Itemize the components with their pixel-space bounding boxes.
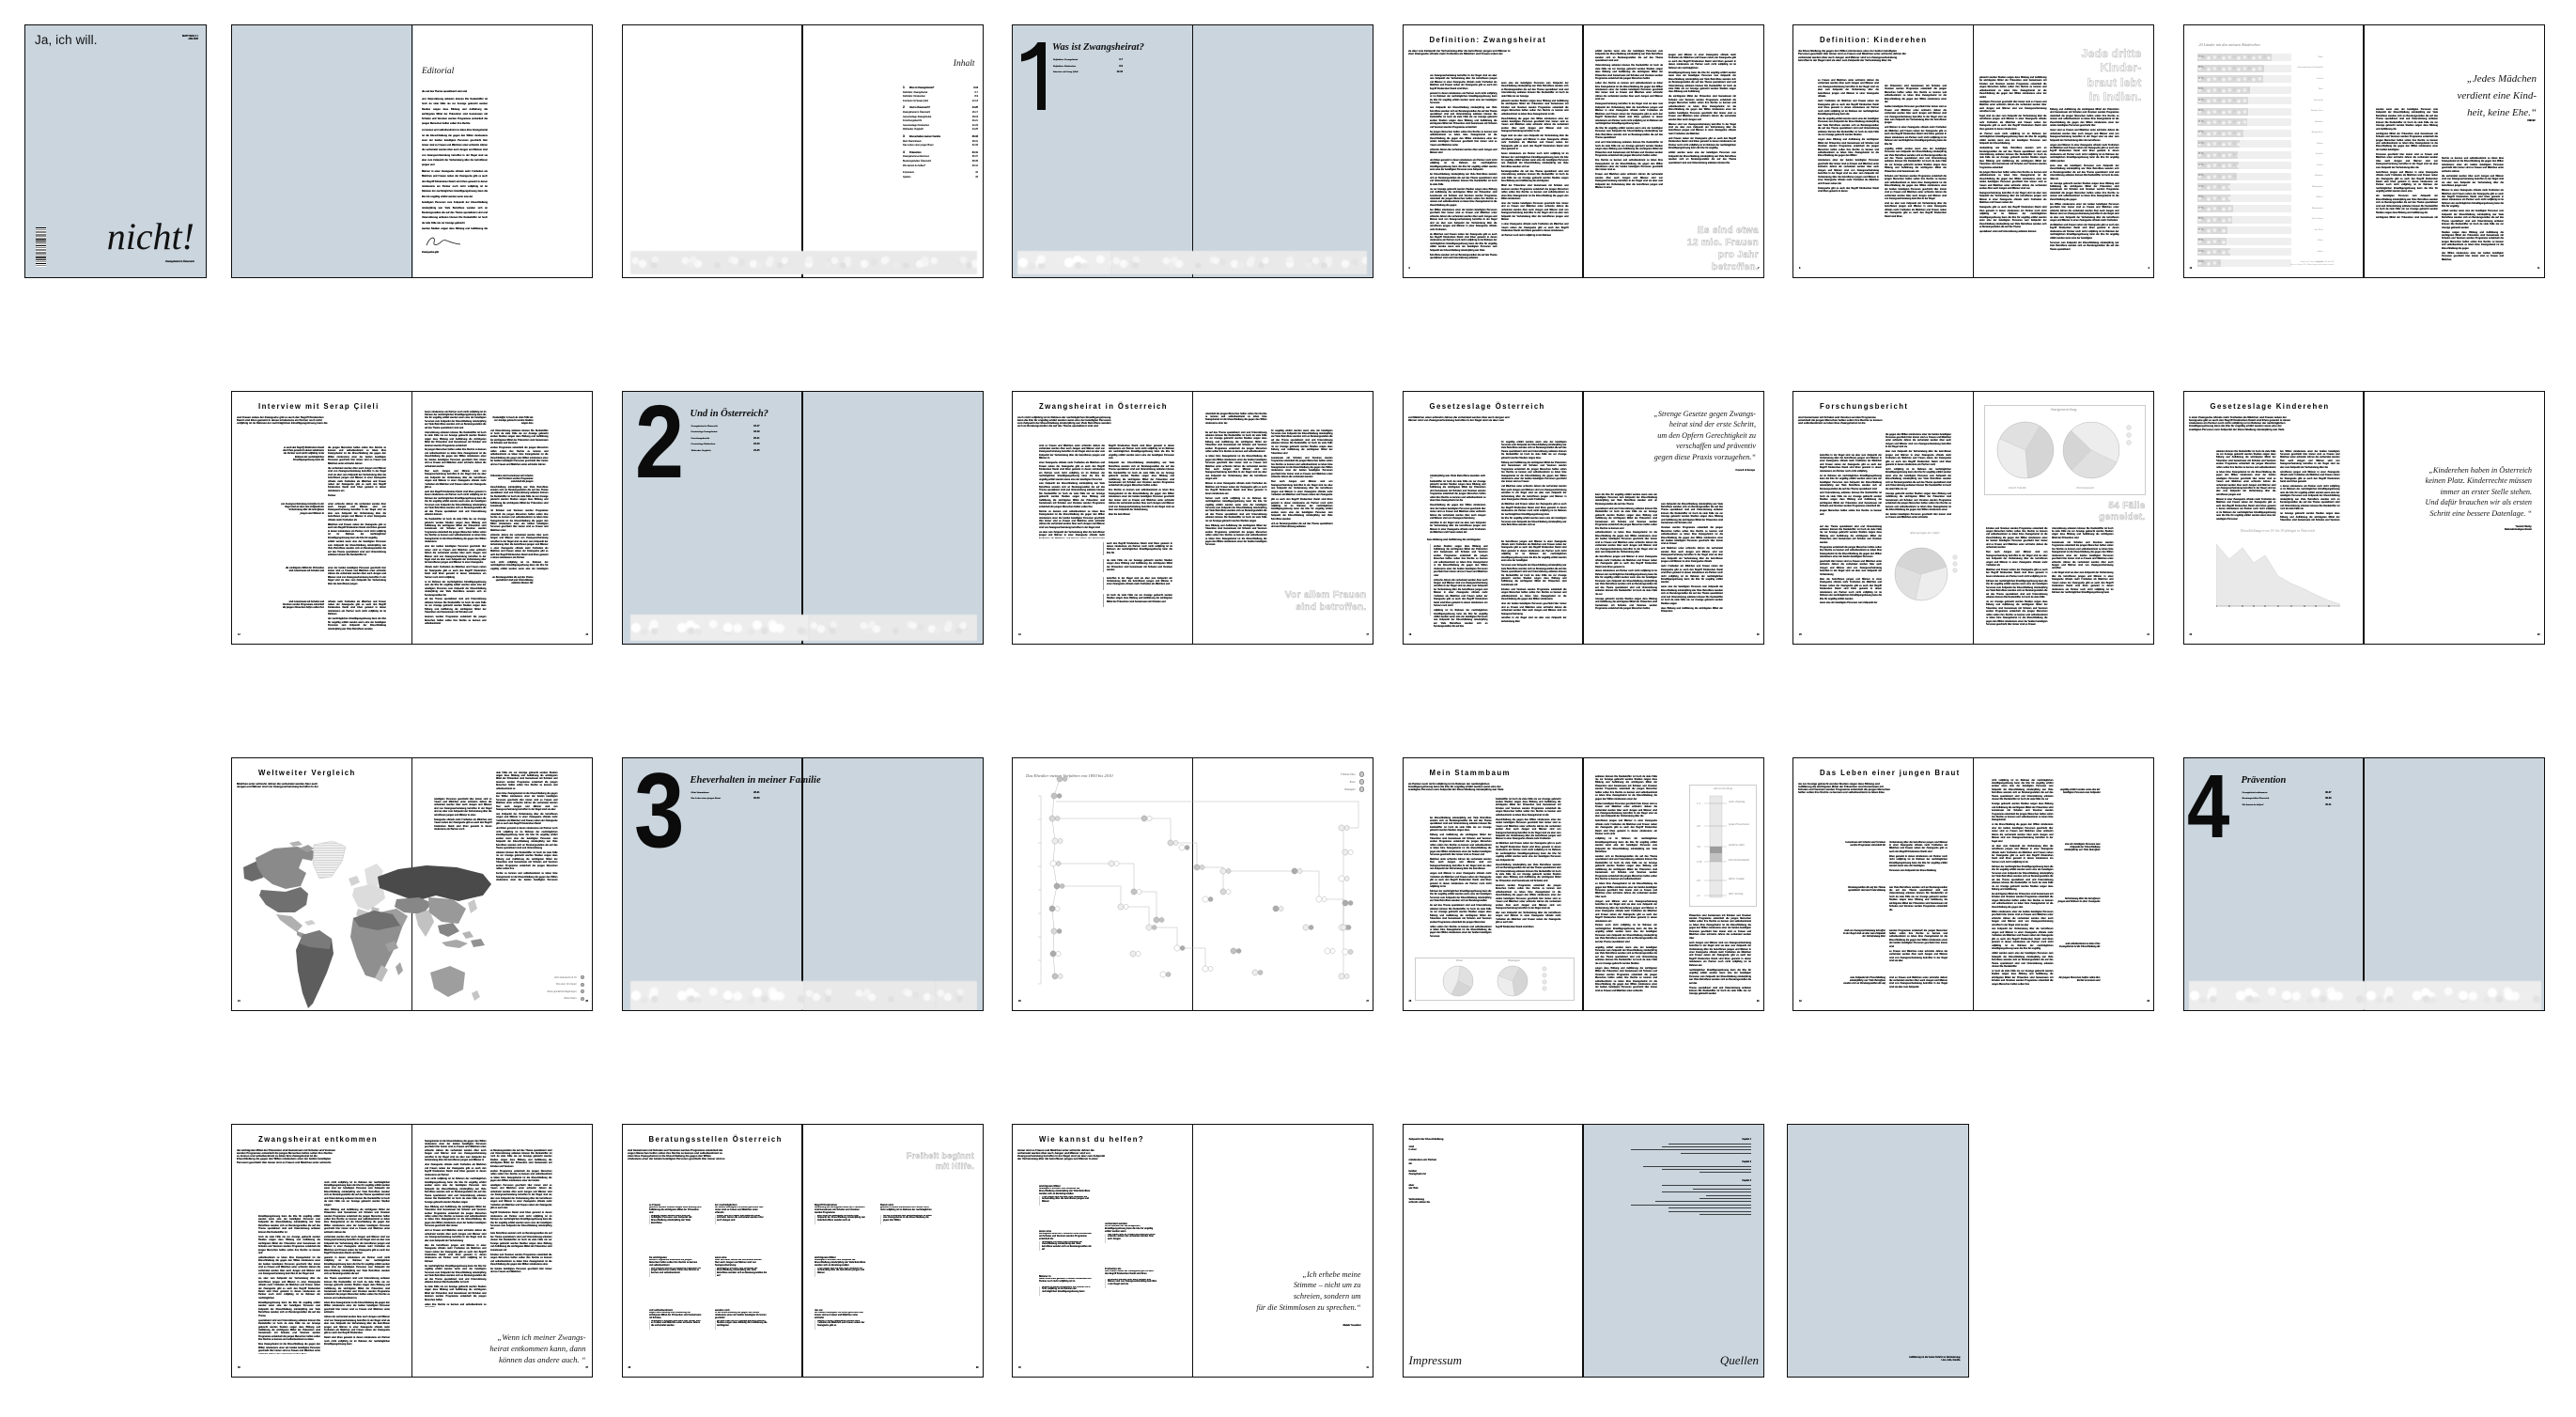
svg-text:7.6: 7.6 <box>1697 845 1700 849</box>
svg-text:unter Zwanzig: unter Zwanzig <box>1729 800 1746 803</box>
svg-text:mittleres Alter: mittleres Alter <box>1729 843 1746 847</box>
svg-text:4.0: 4.0 <box>1697 824 1700 828</box>
svg-text:17.8: 17.8 <box>1697 860 1702 864</box>
svg-text:2.0: 2.0 <box>1697 879 1700 882</box>
svg-text:Durchschnittsalter: Durchschnittsalter <box>1728 858 1750 862</box>
svg-text:1.4: 1.4 <box>1697 802 1700 805</box>
svg-text:über Sechzig: über Sechzig <box>1729 892 1744 895</box>
svg-text:4.1: 4.1 <box>1697 894 1700 897</box>
svg-text:ältere Gruppe: ältere Gruppe <box>1729 877 1745 880</box>
svg-text:junge Erwachsene: junge Erwachsene <box>1728 822 1750 826</box>
